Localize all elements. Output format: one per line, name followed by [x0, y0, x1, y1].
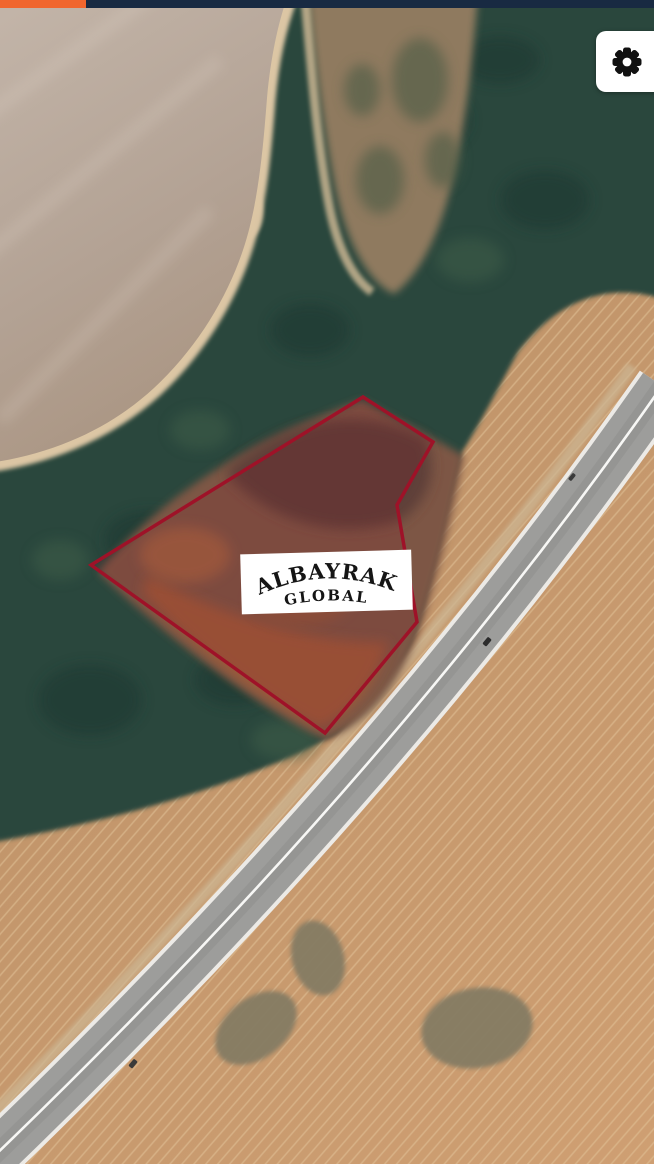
watermark-label: ALBAYRAK GLOBAL: [240, 550, 413, 615]
settings-button[interactable]: [596, 31, 654, 92]
status-bar-accent: [0, 0, 86, 8]
status-bar: [0, 0, 654, 8]
watermark-line2: GLOBAL: [283, 585, 371, 609]
gear-icon: [610, 45, 644, 79]
